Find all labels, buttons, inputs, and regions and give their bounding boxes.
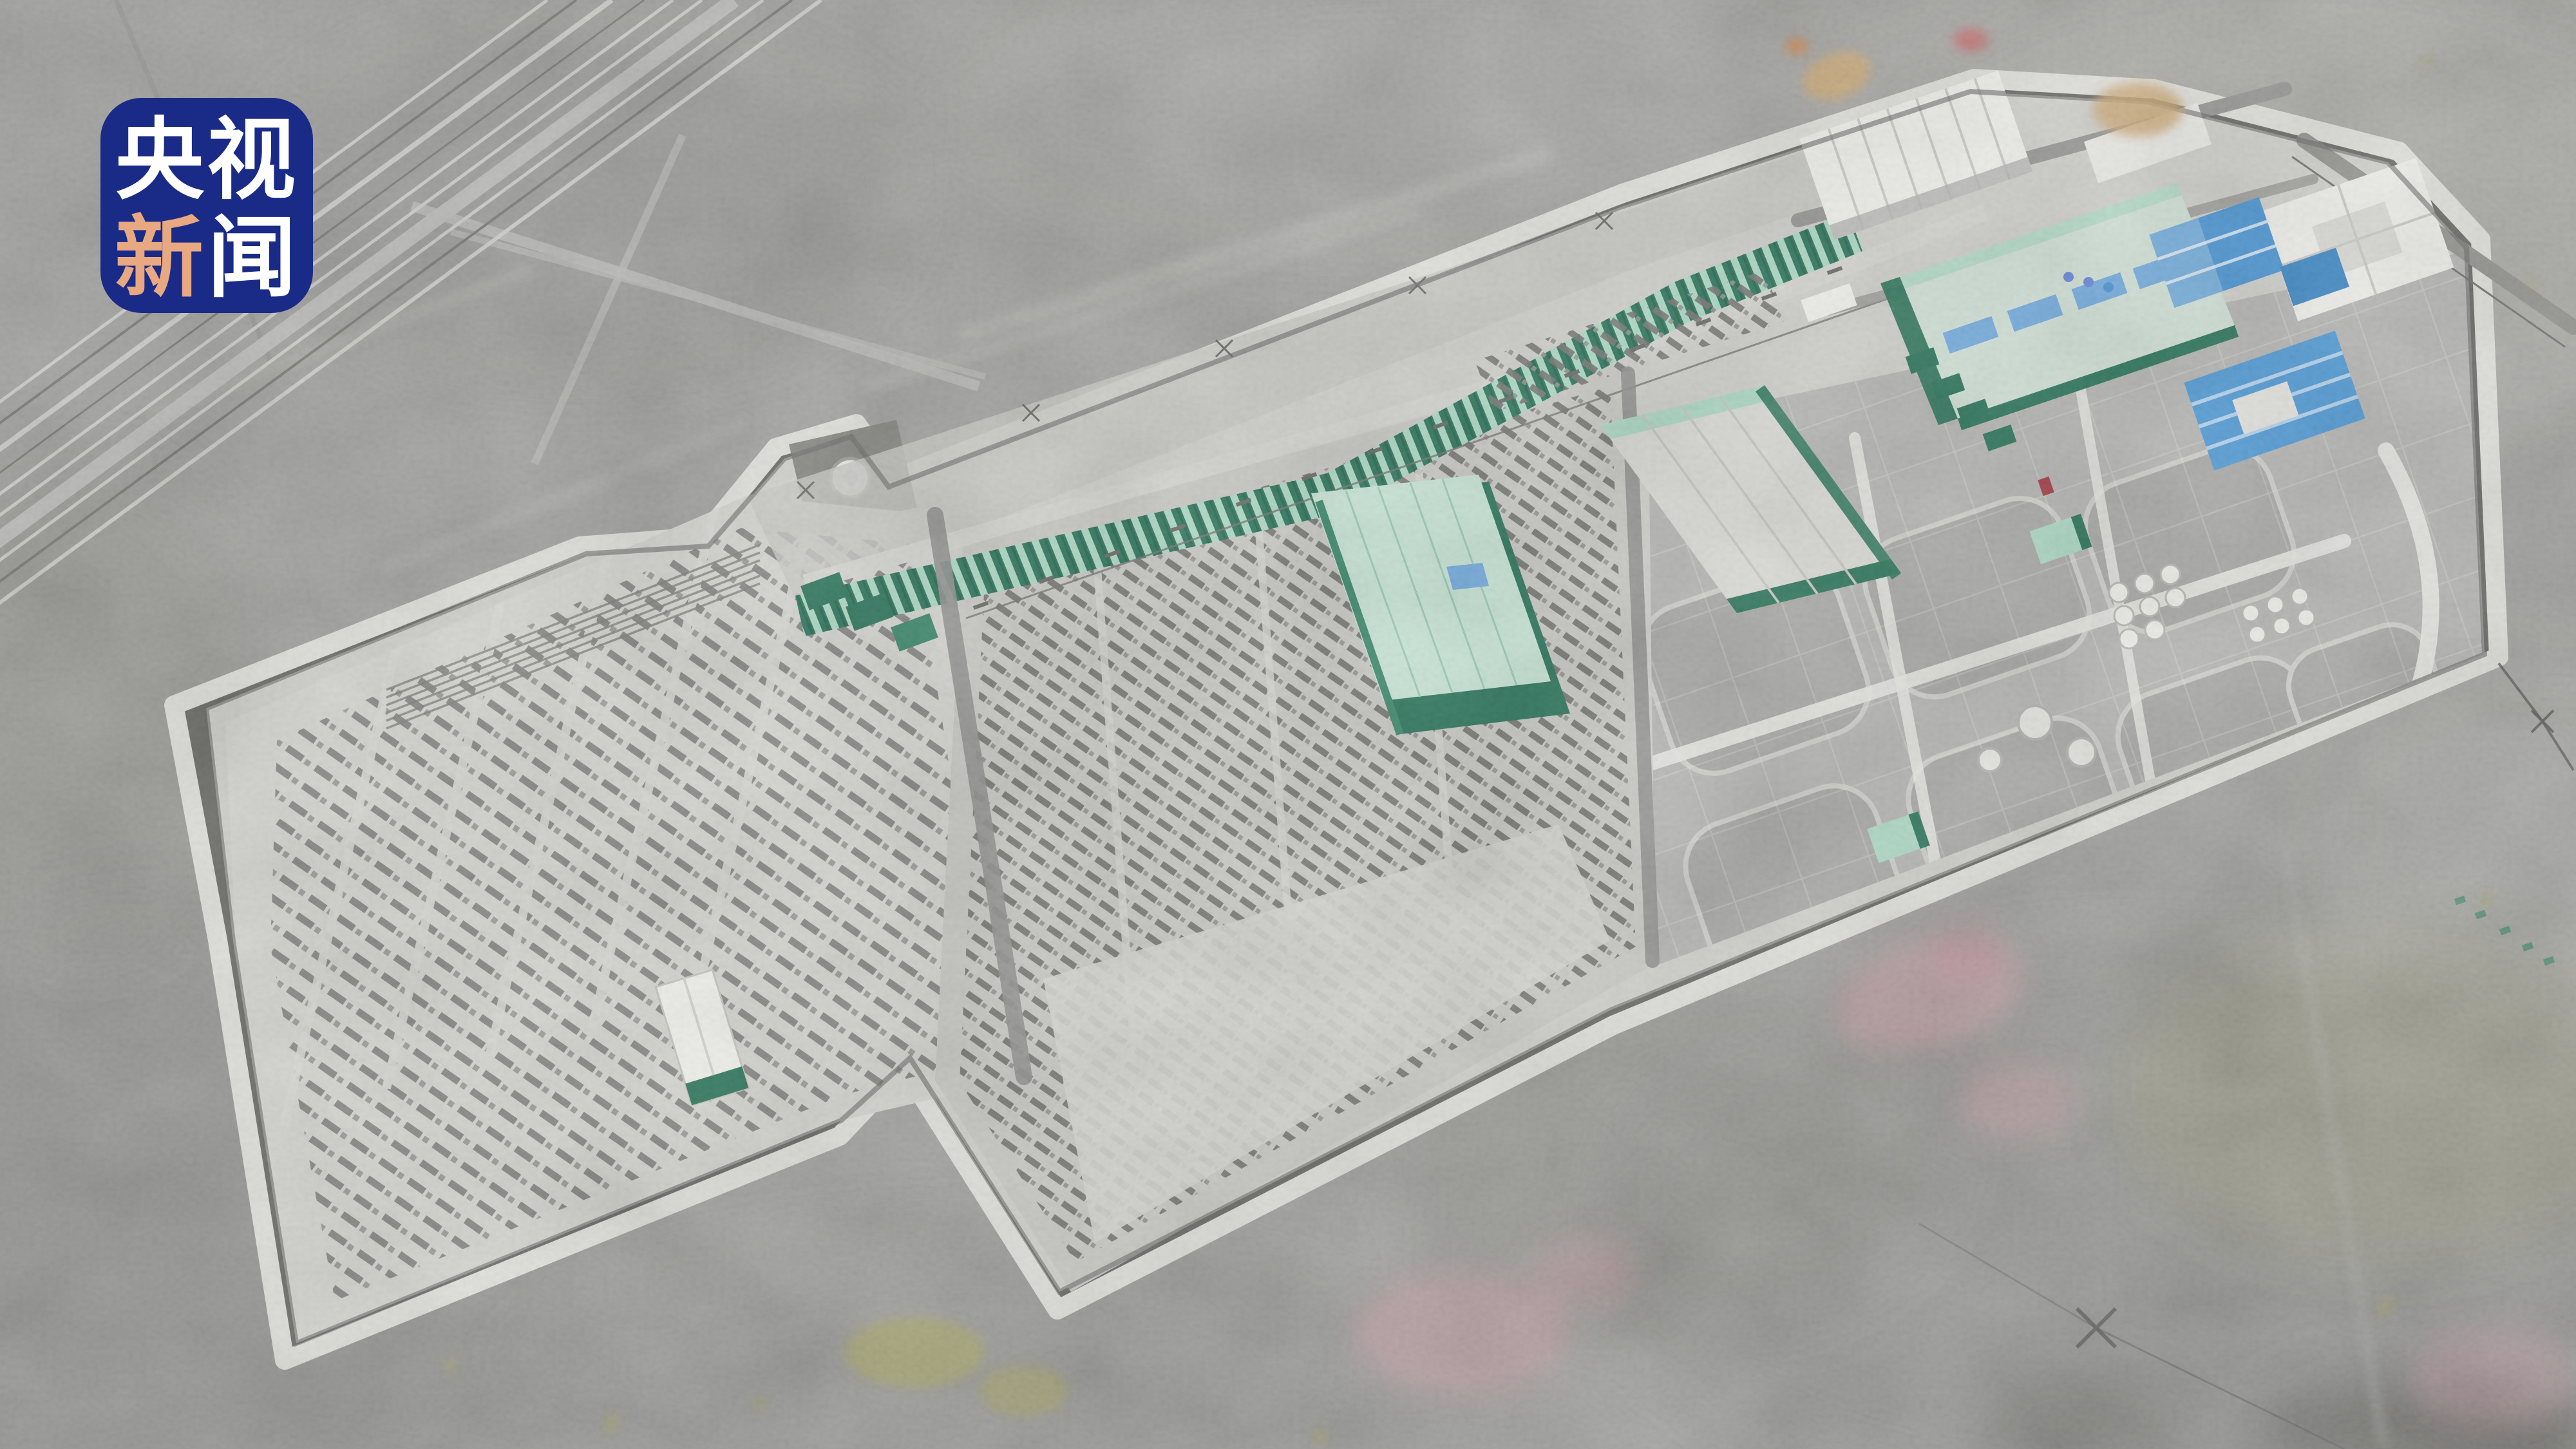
watermark-line2: 新闻 (115, 206, 299, 310)
grain-fine (0, 0, 2576, 1449)
watermark-char-xin: 新 (115, 206, 206, 310)
watermark-line1: 央视 (115, 108, 298, 212)
aerial-photo-canvas: 央视 新闻 (0, 0, 2576, 1449)
aerial-photo: 央视 新闻 (0, 0, 2576, 1449)
watermark-char-wen: 闻 (207, 206, 299, 310)
cctv-news-watermark: 央视 新闻 (100, 98, 313, 313)
